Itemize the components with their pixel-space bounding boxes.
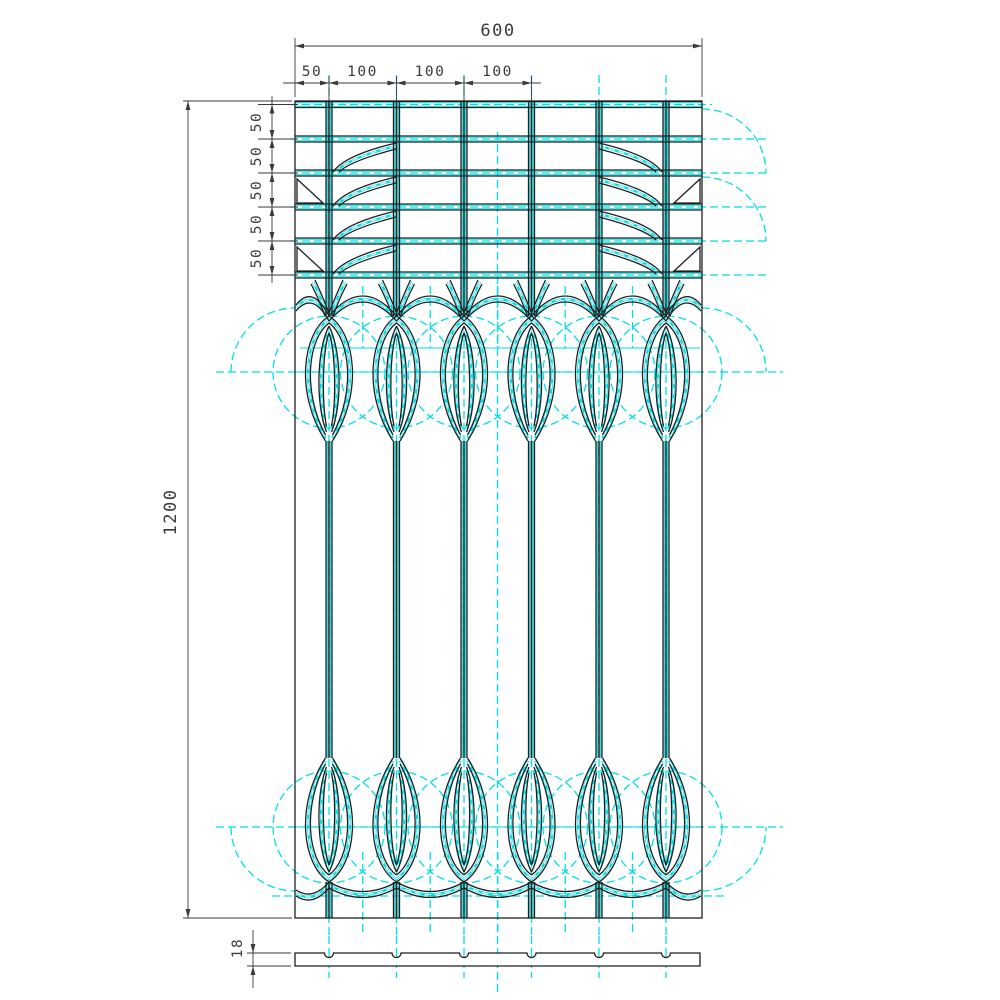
dim-top-chain-100b: 100 xyxy=(415,64,446,80)
dim-left-chain-50d: 50 xyxy=(249,214,265,234)
construction-lines-layer xyxy=(216,75,783,996)
dim-left-chain-50a: 50 xyxy=(249,112,265,132)
grille-panel-technical-drawing: 600 50 100 100 100 50 50 50 50 50 1200 1… xyxy=(0,0,1000,1000)
panel-linework-layer xyxy=(295,101,702,966)
dim-overall-width: 600 xyxy=(480,21,515,41)
dim-section-thickness: 18 xyxy=(230,938,246,958)
dim-left-chain-50c: 50 xyxy=(249,180,265,200)
dim-top-chain-100a: 100 xyxy=(347,64,378,80)
dim-left-chain-50e: 50 xyxy=(249,248,265,268)
dim-top-chain-50: 50 xyxy=(302,64,322,80)
dim-top-chain-100c: 100 xyxy=(482,64,513,80)
dim-overall-height: 1200 xyxy=(161,489,181,536)
dim-left-chain-50b: 50 xyxy=(249,146,265,166)
cad-drawing-canvas: 600 50 100 100 100 50 50 50 50 50 1200 1… xyxy=(0,0,1000,1000)
